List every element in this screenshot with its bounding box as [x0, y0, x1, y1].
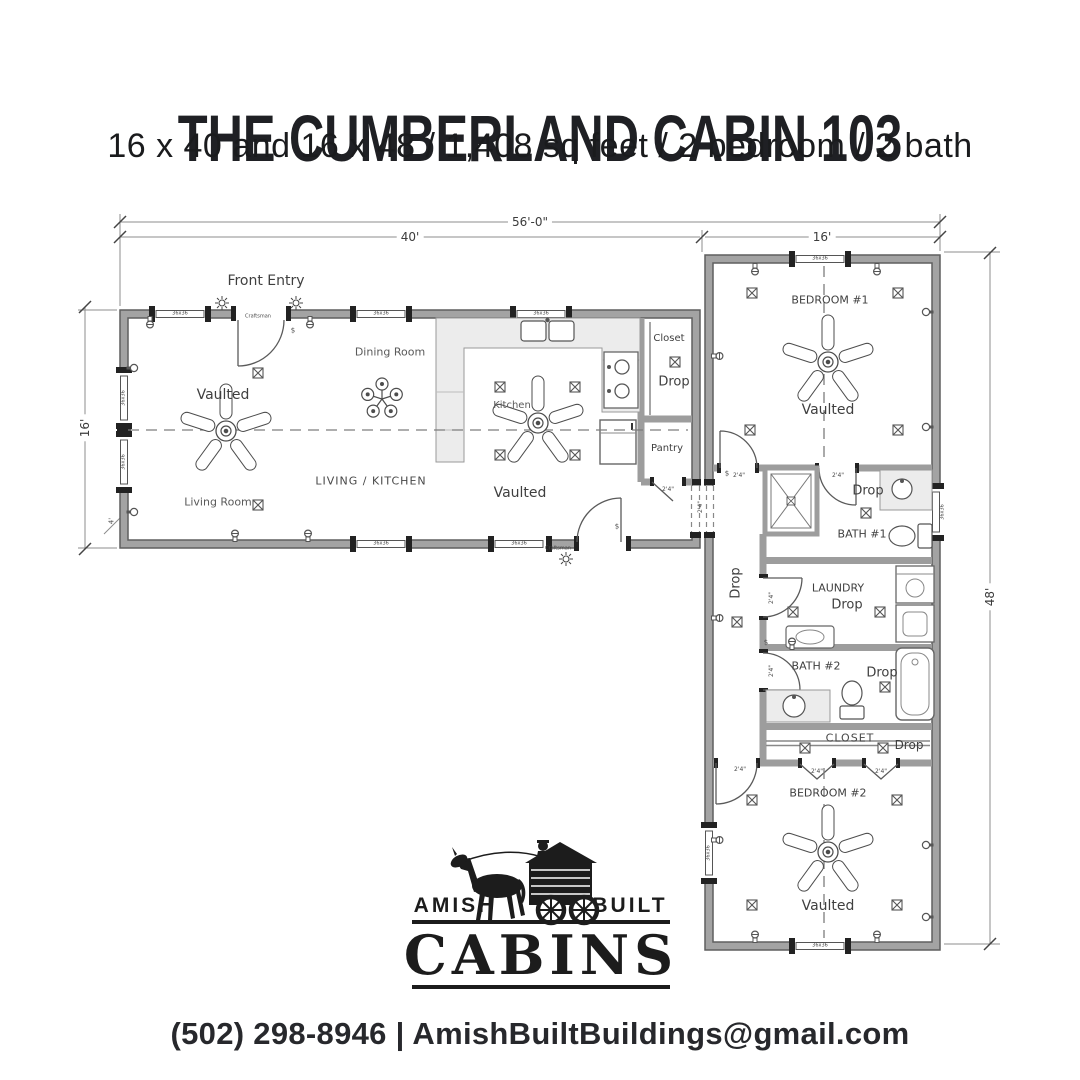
floor-plan-drawing	[0, 0, 1080, 1080]
window-size-label: 36x36	[707, 845, 712, 861]
drop-label-bath2: Drop	[866, 667, 897, 680]
room-label-kitchen: Kitchen	[493, 401, 531, 411]
logo-cabins-text: CABINS	[404, 923, 678, 987]
door-size-label: 2'4"	[769, 592, 775, 604]
vaulted-label-bedroom2: Vaulted	[802, 899, 855, 913]
door-size-label: 2'4"	[769, 665, 775, 677]
door-size-label: 2'4"	[832, 473, 844, 479]
washer-dryer-icons	[896, 566, 934, 642]
door-size-label: 2'4"	[698, 501, 704, 513]
dim-total-width: 56'-0"	[508, 216, 552, 228]
room-label-bedroom1: BEDROOM #1	[791, 295, 868, 306]
door-size-label: 2'4"	[733, 473, 745, 479]
drop-label-hall: Drop	[730, 567, 743, 598]
shower-icon	[765, 468, 817, 534]
room-label-dining: Dining Room	[355, 347, 425, 358]
room-label-bath2: BATH #2	[792, 661, 841, 672]
window-size-label: 36x36	[172, 312, 188, 317]
dim-porch: 4'	[109, 518, 116, 524]
room-label-living-kitchen: LIVING / KITCHEN	[315, 476, 426, 487]
contact-phone: (502) 298-8946	[171, 1016, 387, 1051]
drop-label-closet-top: Drop	[658, 376, 689, 389]
back-door-opening	[578, 534, 627, 553]
drop-label-laundry: Drop	[831, 599, 862, 612]
switch-symbol: $	[725, 471, 729, 478]
switch-symbol: $	[764, 640, 768, 647]
vaulted-label-bedroom1: Vaulted	[802, 403, 855, 417]
door-size-label: 2'4"	[662, 487, 674, 493]
contact-separator: |	[396, 1016, 405, 1051]
window-size-label: 36x36	[373, 312, 389, 317]
logo-built-text: BUILT	[592, 894, 667, 918]
door-size-label: 2'4"	[875, 769, 887, 775]
bath2-toilet-icon	[840, 681, 864, 719]
room-label-living-room: Living Room	[184, 497, 252, 508]
switch-symbol: $	[291, 328, 295, 335]
door-type-label: Craftsman	[245, 315, 271, 320]
window-size-label: 36x36	[122, 390, 127, 406]
dim-left-height: 16'	[79, 415, 91, 442]
room-label-closet-top: Closet	[653, 334, 684, 344]
ceiling-lights	[253, 288, 903, 910]
room-label-front-entry: Front Entry	[227, 274, 304, 288]
stove-icon	[604, 352, 638, 408]
dim-right-width: 16'	[809, 231, 836, 243]
room-label-closet2: CLOSET	[826, 733, 875, 744]
door-size-label: 2'4"	[811, 769, 823, 775]
dim-right-height: 48'	[984, 584, 996, 611]
room-label-laundry: LAUNDRY	[812, 583, 864, 594]
bath1-toilet-icon	[889, 524, 932, 548]
door-size-label: 2'4"	[734, 767, 746, 773]
window-size-label: 36x36	[511, 542, 527, 547]
switch-symbol: $	[615, 524, 619, 531]
contact-email: AmishBuiltBuildings@gmail.com	[412, 1016, 909, 1051]
window-size-label: 36x36	[941, 504, 946, 520]
vaulted-label-kitchen: Vaulted	[494, 486, 547, 500]
contact-info: (502) 298-8946 | AmishBuiltBuildings@gma…	[0, 1016, 1080, 1052]
room-label-bedroom2: BEDROOM #2	[789, 788, 866, 799]
logo-rule-bottom	[412, 985, 670, 989]
dim-left-width: 40'	[397, 231, 424, 243]
vaulted-label-living: Vaulted	[197, 388, 250, 402]
room-label-bath1: BATH #1	[838, 529, 887, 540]
fridge-icon	[600, 420, 636, 464]
ceiling-fan-bedroom2-icon	[781, 805, 874, 894]
window-size-label: 36x36	[812, 257, 828, 262]
ceiling-fan-bedroom1-icon	[781, 315, 874, 404]
room-label-pantry: Pantry	[651, 444, 683, 454]
bath2-vanity	[766, 690, 830, 722]
logo-amish-text: AMISH	[414, 894, 497, 918]
chandelier-icon	[362, 378, 403, 417]
bath1-vanity	[880, 470, 932, 510]
window-size-label: 36x36	[533, 312, 549, 317]
drop-label-closet2: Drop	[895, 739, 924, 751]
window-size-label: 36x36	[812, 944, 828, 949]
window-size-label: 36x36	[122, 454, 127, 470]
page: THE CUMBERLAND CABIN 103 16 x 40 and 16 …	[0, 0, 1080, 1080]
window-size-label: 36x36	[373, 542, 389, 547]
tub-icon	[896, 648, 934, 720]
drop-label-bath1: Drop	[852, 485, 883, 498]
door-type-label: Craftsman	[545, 547, 571, 552]
